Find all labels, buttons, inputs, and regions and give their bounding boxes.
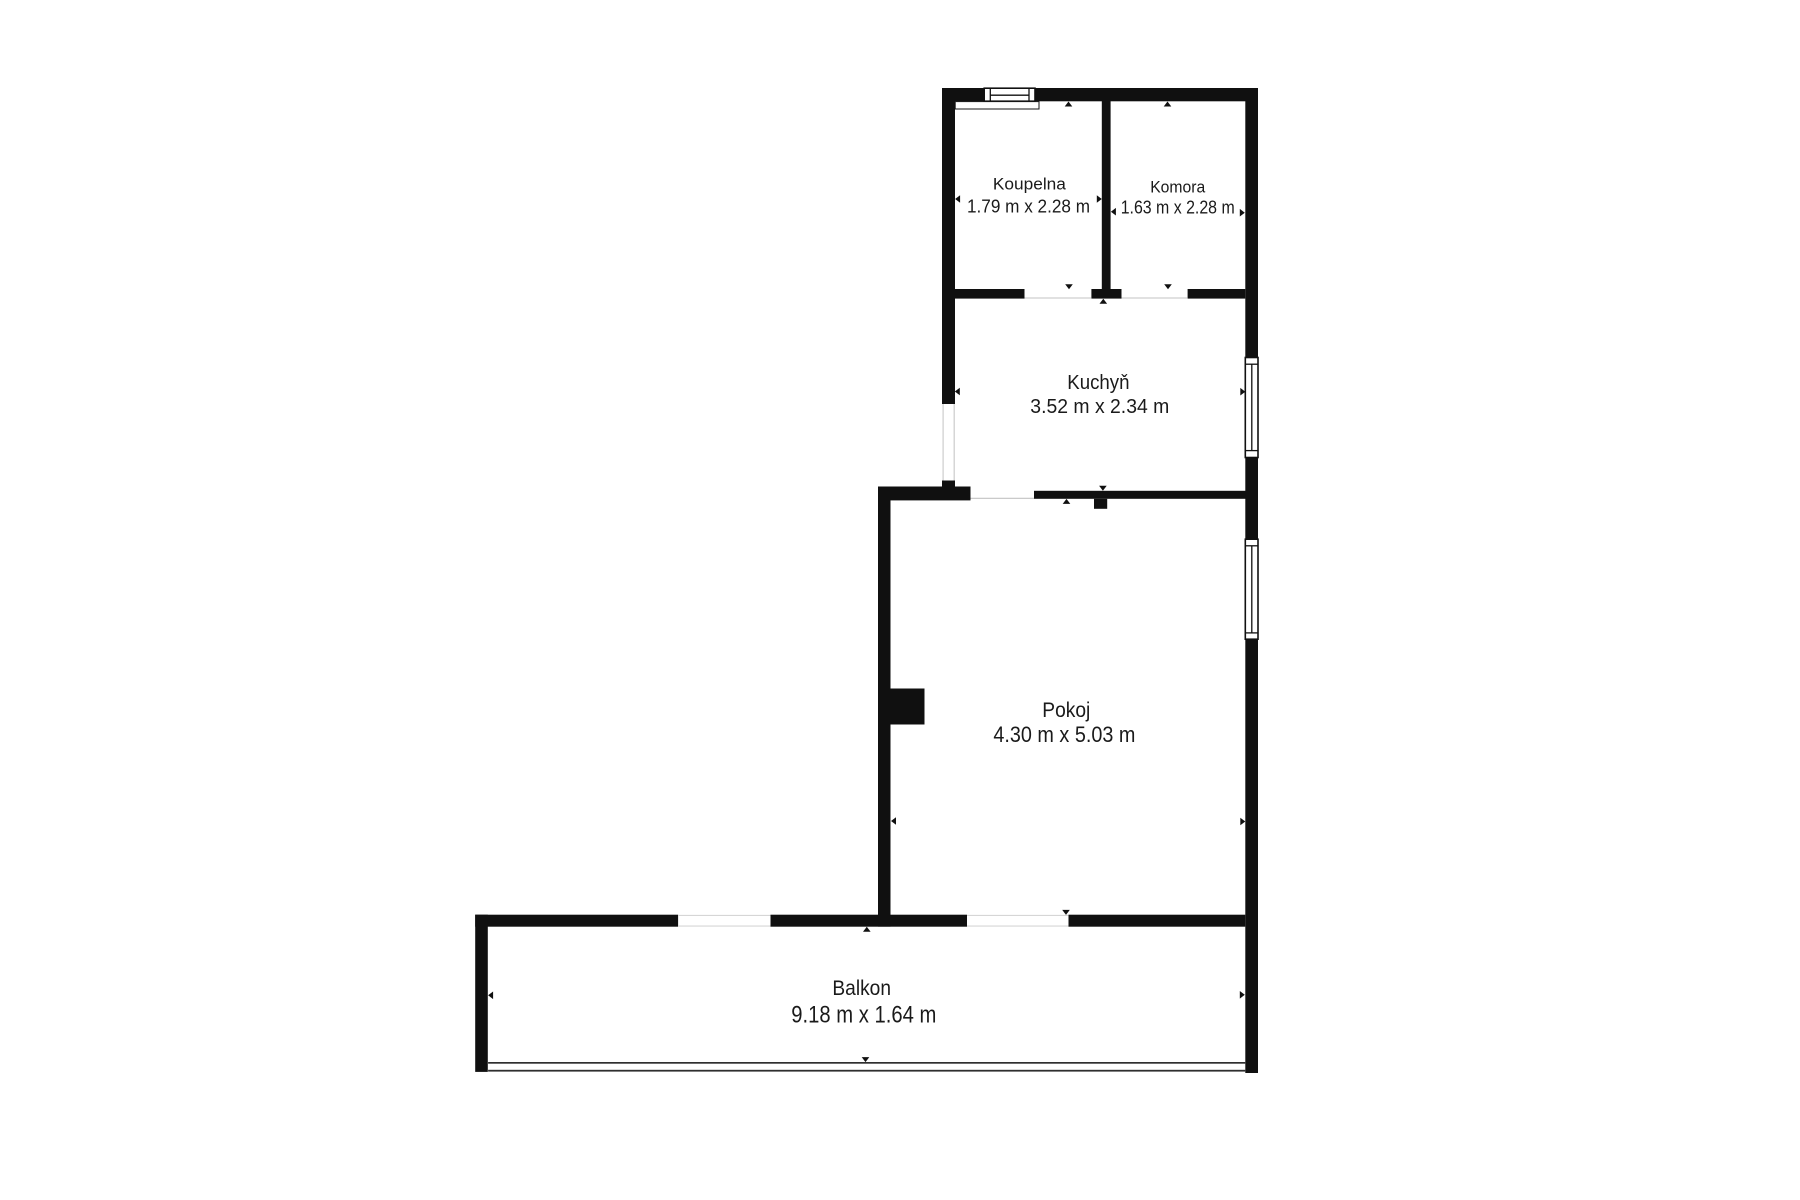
svg-text:Kuchyň: Kuchyň — [1067, 371, 1129, 394]
svg-text:4.30 m x 5.03 m: 4.30 m x 5.03 m — [993, 722, 1135, 747]
svg-text:Koupelna: Koupelna — [993, 176, 1067, 194]
svg-text:Pokoj: Pokoj — [1042, 699, 1090, 722]
svg-text:9.18 m x 1.64 m: 9.18 m x 1.64 m — [791, 1001, 936, 1028]
svg-text:Balkon: Balkon — [832, 977, 891, 1000]
svg-text:3.52 m x 2.34 m: 3.52 m x 2.34 m — [1030, 396, 1169, 418]
svg-text:1.63 m x 2.28 m: 1.63 m x 2.28 m — [1121, 197, 1235, 217]
svg-text:Komora: Komora — [1150, 178, 1205, 196]
svg-text:1.79 m x 2.28 m: 1.79 m x 2.28 m — [967, 196, 1090, 216]
